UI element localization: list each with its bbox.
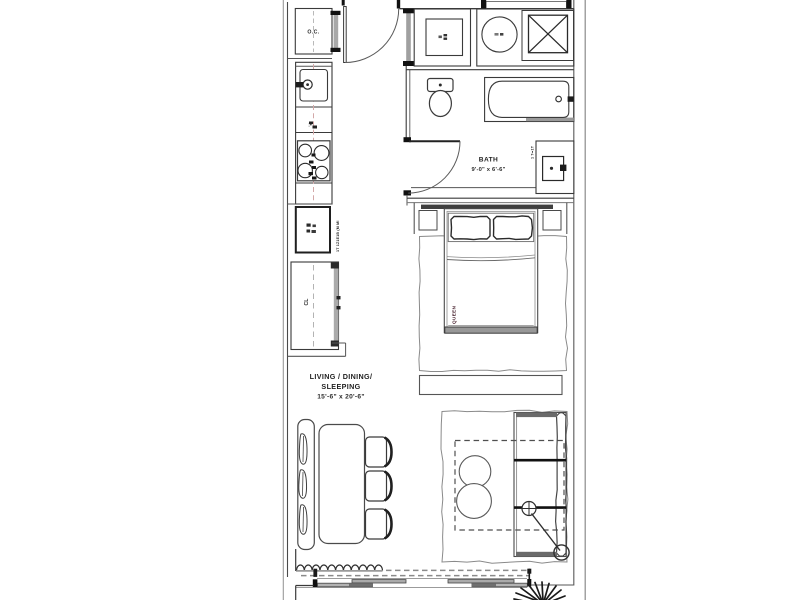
svg-text:BATH: BATH xyxy=(479,157,498,164)
svg-text:15'-6" x 20'-6": 15'-6" x 20'-6" xyxy=(317,394,365,401)
svg-text:1 7••1T: 1 7••1T xyxy=(531,145,535,159)
svg-text:QUEEN: QUEEN xyxy=(452,305,457,324)
svg-text:CL: CL xyxy=(304,298,310,306)
svg-text:O.C.: O.C. xyxy=(307,30,319,36)
svg-text:LIVING / DINING/: LIVING / DINING/ xyxy=(310,372,373,381)
svg-text:1T 1Z1E1B (M MI: 1T 1Z1E1B (M MI xyxy=(336,220,340,252)
svg-text:SLEEPING: SLEEPING xyxy=(321,382,360,391)
svg-text:9'-0" x 6'-6": 9'-0" x 6'-6" xyxy=(471,167,505,173)
